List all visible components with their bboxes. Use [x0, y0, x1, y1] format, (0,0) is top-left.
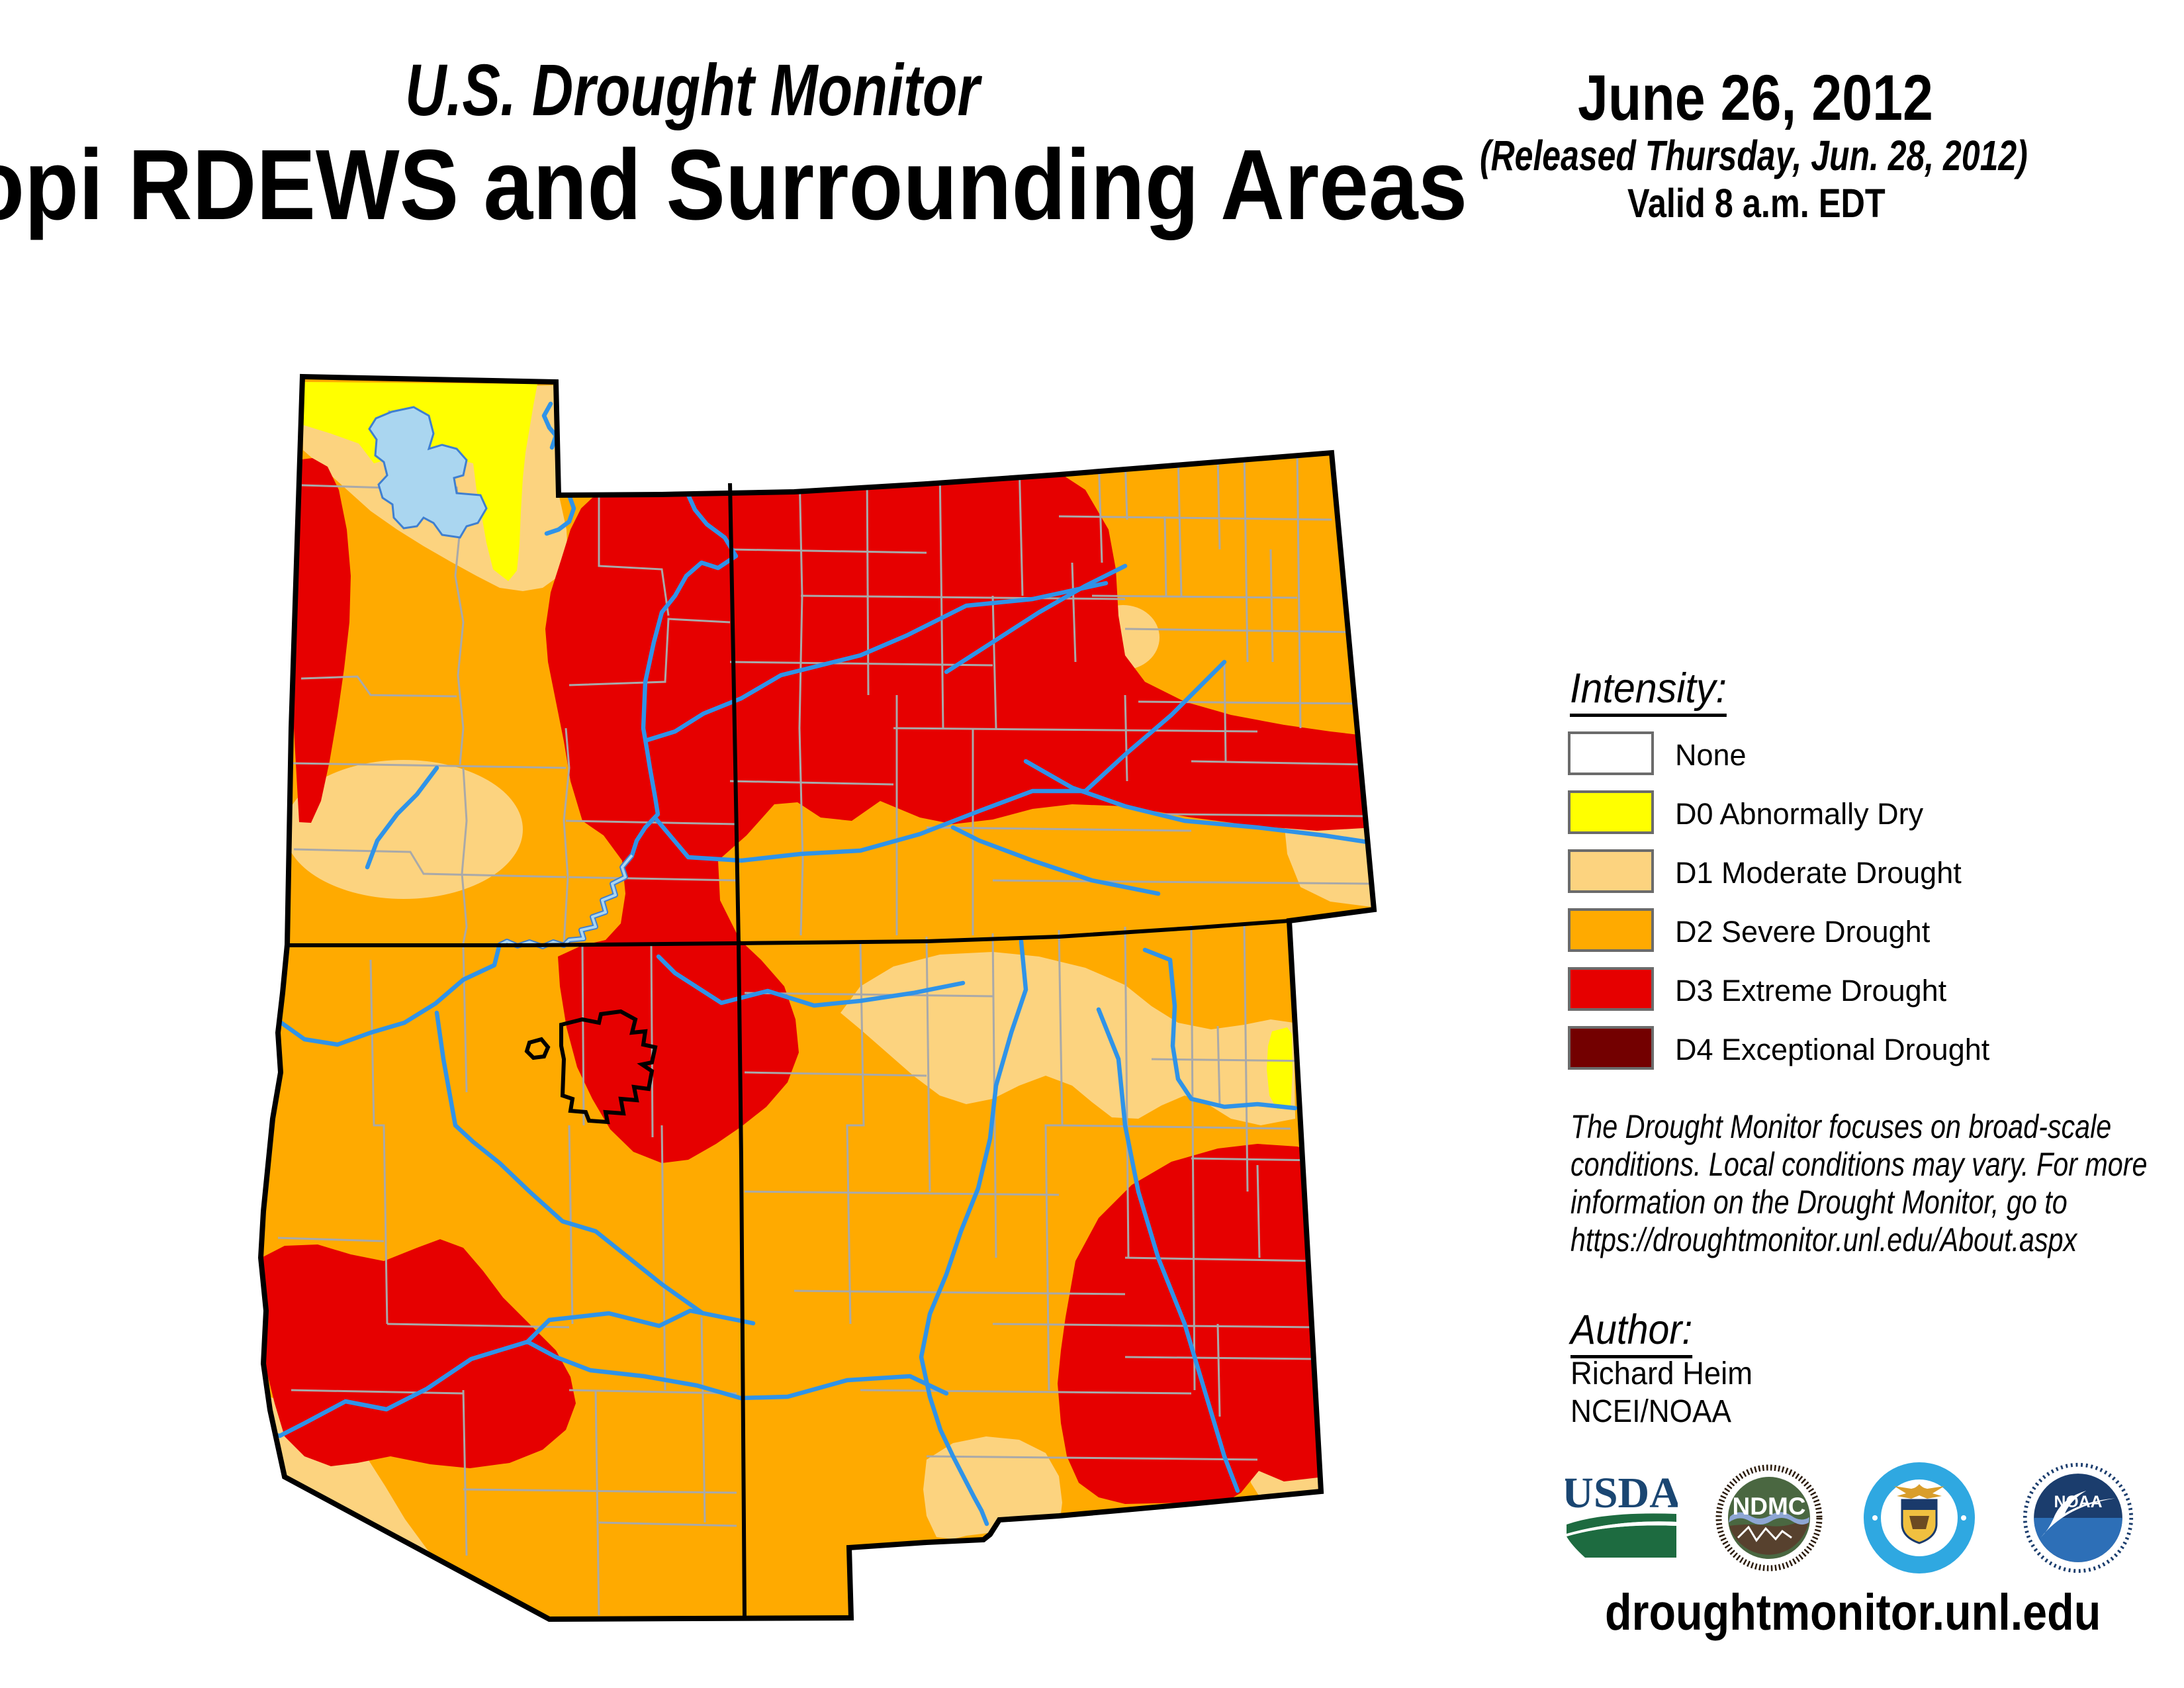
svg-text:NOAA: NOAA: [2054, 1493, 2102, 1511]
svg-text:NDMC: NDMC: [1733, 1493, 1806, 1520]
svg-text:USDA: USDA: [1565, 1473, 1678, 1517]
